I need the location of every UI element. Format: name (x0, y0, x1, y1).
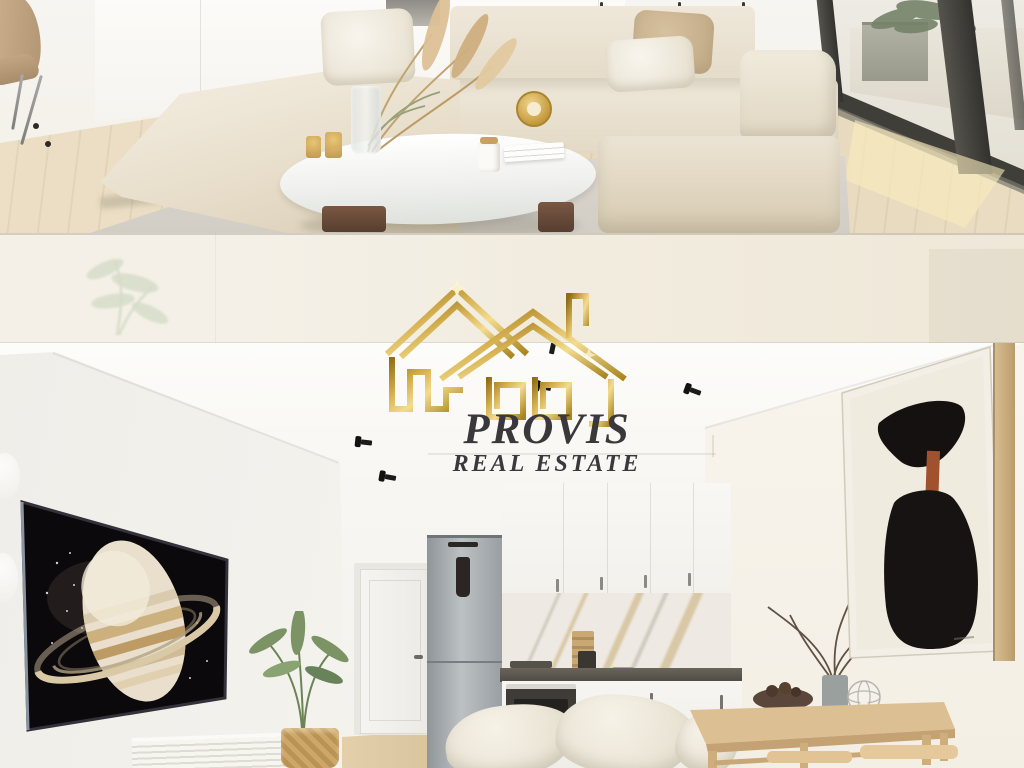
cabinet-seam (650, 483, 651, 593)
cabinet-seam (607, 483, 608, 593)
chair-foot (45, 141, 51, 147)
glass-vase (351, 86, 381, 154)
fridge-magnet (456, 557, 470, 597)
band-faded-panel (929, 249, 1024, 343)
cabinet-handle (644, 575, 647, 588)
potted-plant (240, 611, 350, 736)
door-handle (414, 655, 423, 659)
pan (510, 661, 552, 668)
photo-bottom-open-plan (0, 343, 1024, 768)
cabinet-handle (600, 577, 603, 590)
ceiling-spotlight (540, 384, 552, 391)
chair-foot (33, 123, 39, 129)
wood-door-edge (993, 343, 1015, 661)
real-estate-collage: PROVIS REAL ESTATE (0, 0, 1024, 768)
band-seam (215, 233, 216, 343)
gold-clock (516, 91, 552, 127)
fridge-door-split (427, 661, 503, 663)
ceiling-spotlight (385, 474, 397, 481)
upper-cabinets (502, 483, 731, 595)
candle-votive (325, 132, 342, 158)
ceiling-spotlight (361, 439, 372, 445)
table-pedestal (538, 202, 574, 232)
soffit-edge (428, 453, 716, 455)
candle-votive (306, 136, 321, 158)
band-shadow-line (0, 233, 1024, 235)
hallway-door (360, 569, 430, 734)
cabinet-handle (688, 573, 691, 586)
fridge-handle (448, 542, 478, 547)
abstract-painting (834, 343, 1016, 665)
faded-plant-motif (55, 239, 200, 341)
sofa-armrest (740, 50, 836, 140)
saturn-artwork-screen (12, 493, 234, 738)
cabinet-seam (693, 483, 694, 593)
photo-top-living-room (0, 0, 1024, 233)
ribbed-console (131, 732, 300, 768)
sofa-ottoman (598, 136, 840, 233)
divider-band (0, 233, 1024, 343)
hallway-floor (342, 731, 432, 768)
table-pedestal (322, 206, 386, 232)
cabinet-seam (563, 483, 564, 593)
throw-pillow (604, 35, 695, 93)
ceiling-spotlight (689, 387, 701, 395)
wicker-pot (281, 728, 339, 768)
cork-jar (478, 142, 500, 172)
soffit-edge (712, 435, 714, 457)
chair-leg (20, 75, 43, 145)
ceiling-spotlight (549, 343, 556, 354)
cabinet-handle (556, 579, 559, 592)
